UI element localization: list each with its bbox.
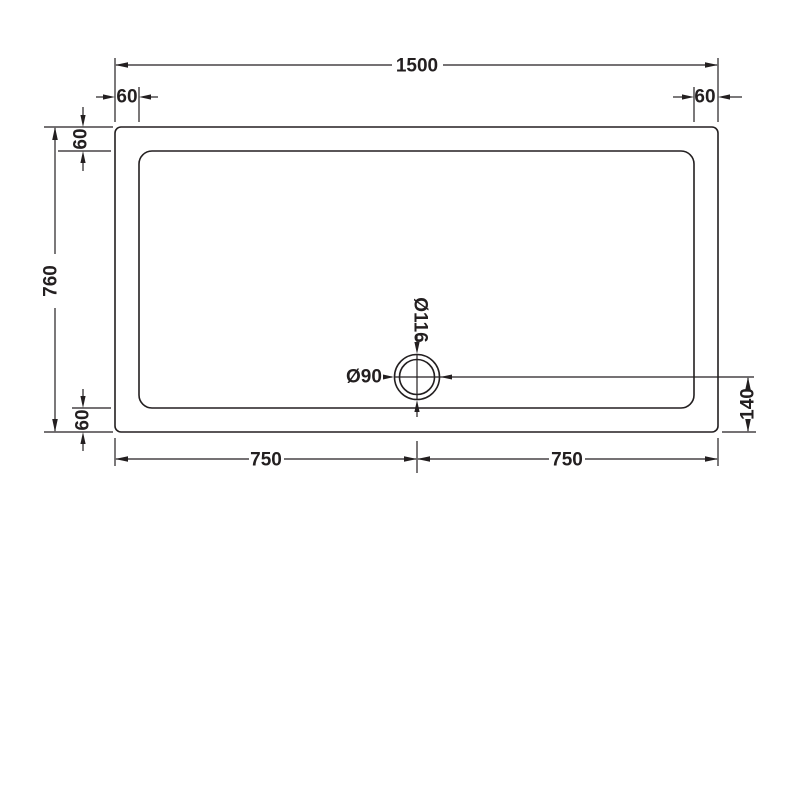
- dim-bottom-right-half-label: 750: [551, 450, 583, 471]
- arrowhead-down: [80, 115, 85, 127]
- shower-tray-dimension-diagram: 1500 60 60 60 760: [0, 0, 800, 800]
- diagram-canvas: 1500 60 60 60 760: [0, 0, 800, 800]
- arrowhead-left: [139, 94, 151, 99]
- dim-bottom-left-half-label: 750: [250, 450, 282, 471]
- dim-rim-left-bottom-label: 60: [73, 409, 94, 430]
- dim-rim-top-left: 60: [96, 87, 158, 122]
- dim-waste-outer-diameter-label: Ø116: [409, 297, 430, 342]
- arrowhead-down: [52, 419, 58, 432]
- arrowhead-down: [80, 396, 85, 408]
- dim-bottom-right-half: 750: [417, 438, 718, 471]
- dim-rim-top-left-label: 60: [116, 87, 137, 108]
- arrowhead-right: [404, 456, 417, 462]
- arrowhead-up: [745, 377, 751, 390]
- arrowhead-up: [52, 127, 58, 140]
- arrowhead-down: [414, 342, 419, 354]
- arrowhead-down: [745, 419, 751, 432]
- arrowhead-left: [115, 62, 128, 68]
- dim-rim-top-right: 60: [673, 87, 742, 122]
- dim-waste-inner-diameter: Ø90: [346, 367, 754, 388]
- arrowhead-up: [80, 432, 85, 444]
- dim-waste-centre-to-edge: 140: [722, 377, 759, 432]
- dim-overall-depth: 760: [41, 127, 113, 432]
- arrowhead-up: [80, 151, 85, 163]
- dim-overall-width-label: 1500: [396, 56, 438, 77]
- arrowhead-left: [718, 94, 730, 99]
- arrowhead-left: [115, 456, 128, 462]
- arrowhead-up: [414, 400, 419, 412]
- arrowhead-left: [417, 456, 430, 462]
- arrowhead-right: [705, 456, 718, 462]
- arrowhead-right: [705, 62, 718, 68]
- dim-waste-centre-to-edge-label: 140: [738, 388, 759, 420]
- arrowhead-right: [103, 94, 115, 99]
- dim-rim-left-top-label: 60: [71, 128, 92, 149]
- dim-overall-width: 1500: [115, 56, 718, 122]
- arrowhead-right: [682, 94, 694, 99]
- arrowhead-right: [383, 375, 394, 380]
- dim-waste-inner-diameter-label: Ø90: [346, 367, 382, 388]
- dim-rim-left-top: 60: [58, 107, 111, 171]
- dim-rim-left-bottom: 60: [72, 389, 111, 451]
- dim-overall-depth-label: 760: [41, 265, 62, 297]
- dim-bottom-left-half: 750: [115, 438, 417, 473]
- dim-rim-top-right-label: 60: [694, 87, 715, 108]
